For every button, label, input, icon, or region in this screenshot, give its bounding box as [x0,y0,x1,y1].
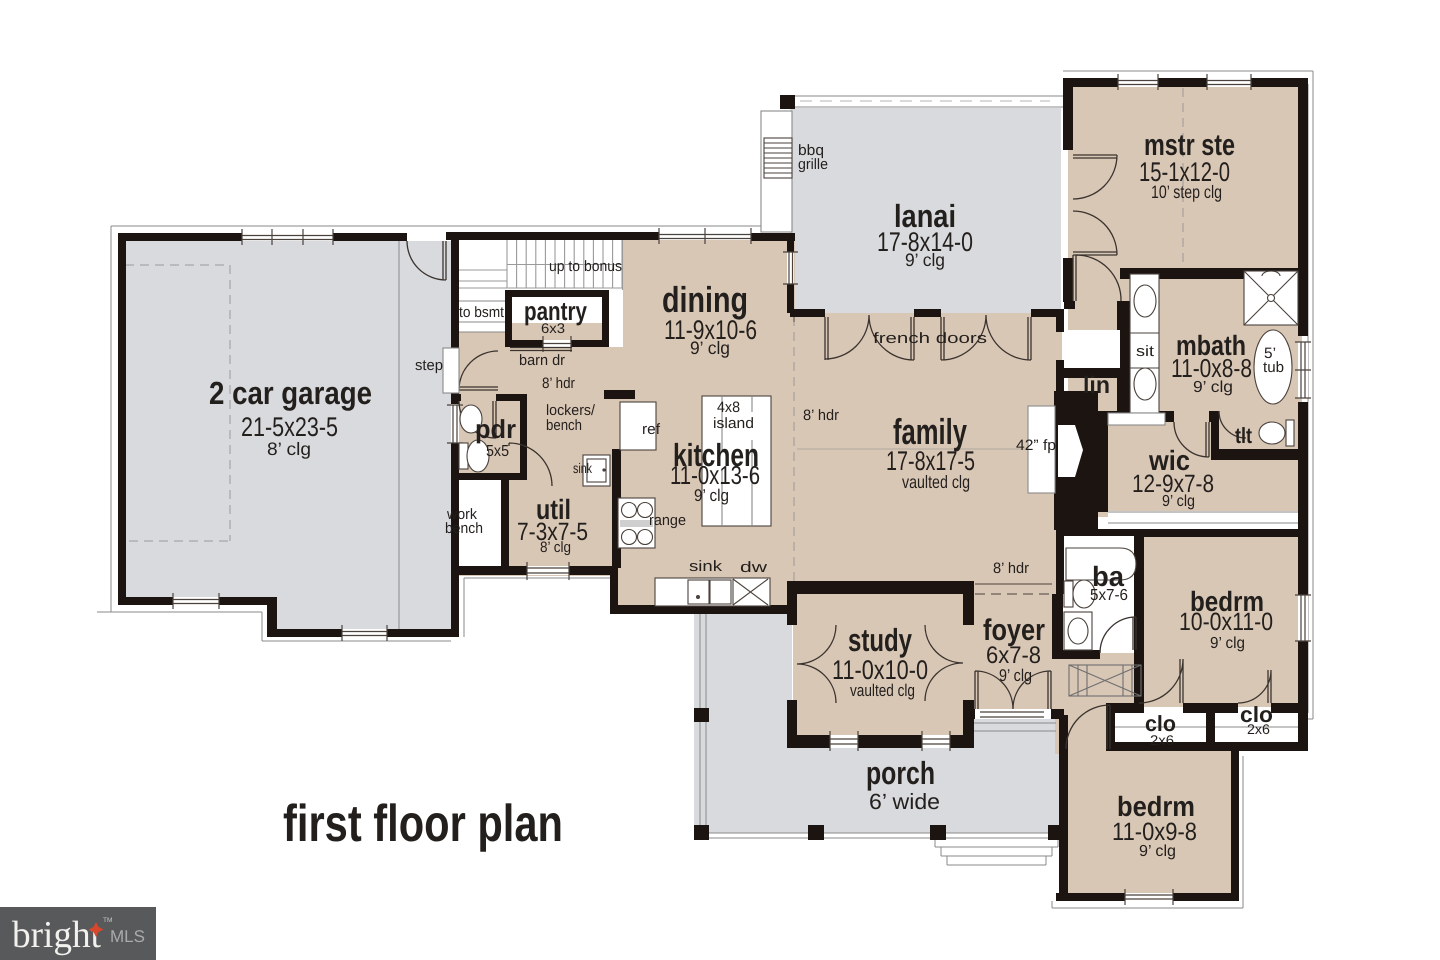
svg-text:french doors: french doors [873,330,987,347]
svg-text:6’ wide: 6’ wide [869,789,940,814]
svg-text:vaulted clg: vaulted clg [902,472,970,492]
svg-text:8’ hdr: 8’ hdr [803,407,839,424]
svg-text:island: island [713,415,754,432]
svg-text:9’ clg: 9’ clg [1210,635,1245,652]
svg-text:step: step [415,357,443,374]
svg-text:9’ clg: 9’ clg [1139,843,1176,860]
svg-text:pdr: pdr [475,414,516,444]
svg-text:dining: dining [662,279,748,320]
svg-text:study: study [848,622,912,658]
svg-text:9’ clg: 9’ clg [1162,493,1195,510]
svg-text:9’ clg: 9’ clg [1193,379,1233,396]
svg-text:6x3: 6x3 [541,320,565,336]
svg-text:barn dr: barn dr [519,352,565,369]
svg-text:6x7-8: 6x7-8 [986,642,1041,669]
svg-text:sink: sink [573,460,593,476]
svg-text:first floor plan: first floor plan [283,795,563,853]
svg-text:ref: ref [642,421,661,438]
svg-text:21-5x23-5: 21-5x23-5 [241,412,338,442]
svg-text:9’ clg: 9’ clg [694,486,729,505]
svg-text:sit: sit [1136,343,1155,360]
svg-text:tub: tub [1263,359,1284,376]
svg-text:to bsmt: to bsmt [459,304,505,321]
svg-text:42” fp: 42” fp [1016,437,1056,454]
svg-text:porch: porch [866,755,935,791]
svg-text:5x5: 5x5 [486,443,509,460]
svg-text:dw: dw [740,559,767,576]
svg-text:11-0x9-8: 11-0x9-8 [1112,818,1197,846]
svg-text:sink: sink [689,558,723,575]
svg-text:2 car garage: 2 car garage [209,375,372,411]
svg-text:8’ clg: 8’ clg [540,539,571,556]
svg-text:bench: bench [445,520,483,537]
svg-text:9’ clg: 9’ clg [690,338,730,358]
svg-text:bright: bright [12,914,101,956]
svg-text:4x8: 4x8 [717,399,740,416]
svg-text:TM: TM [103,917,112,924]
svg-text:vaulted clg: vaulted clg [850,681,915,700]
svg-text:2x6: 2x6 [1247,721,1270,737]
svg-text:9’ clg: 9’ clg [999,666,1032,685]
svg-text:2x6: 2x6 [1150,732,1174,748]
svg-text:lin: lin [1083,372,1110,399]
svg-text:up to bonus: up to bonus [549,258,622,275]
svg-text:8’ hdr: 8’ hdr [993,560,1029,577]
svg-text:9’ clg: 9’ clg [905,250,945,270]
svg-text:10’ step clg: 10’ step clg [1151,182,1222,202]
svg-text:10-0x11-0: 10-0x11-0 [1179,608,1273,636]
svg-text:8’ clg: 8’ clg [267,439,311,459]
svg-text:tlt: tlt [1235,423,1253,448]
svg-text:range: range [649,512,686,529]
svg-text:bench: bench [546,417,582,434]
svg-text:MLS: MLS [110,927,145,946]
svg-text:grille: grille [798,156,828,173]
svg-text:5x7-6: 5x7-6 [1090,587,1128,604]
svg-text:8’ hdr: 8’ hdr [542,375,575,392]
